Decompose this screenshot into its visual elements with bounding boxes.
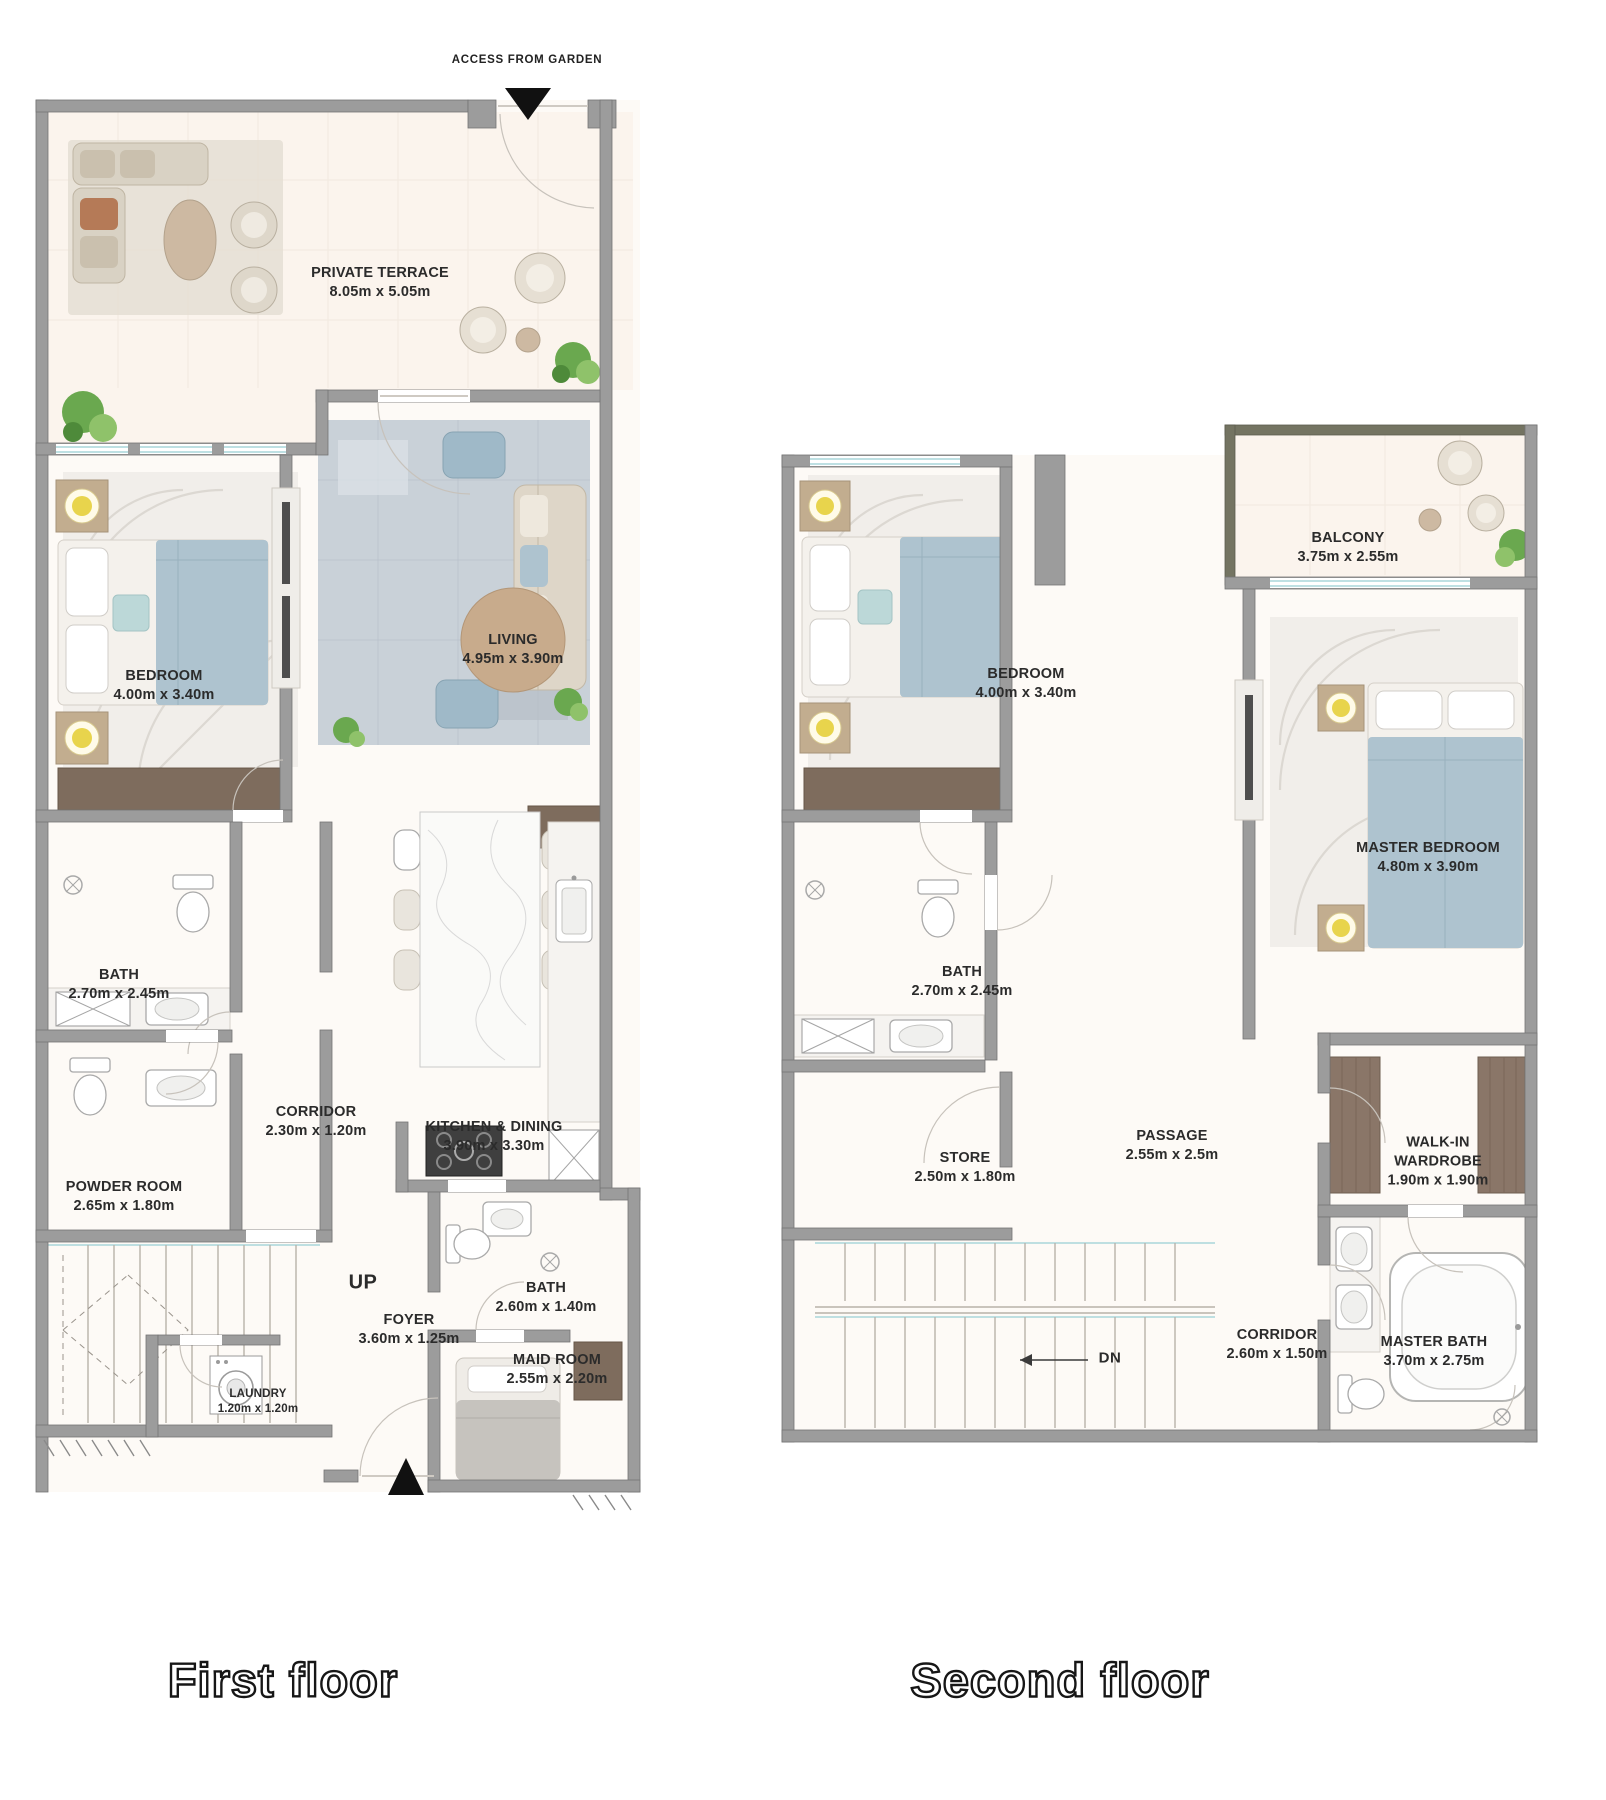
nightstand-lamp-icon [1318,685,1364,731]
room-label-corridor: CORRIDOR 2.30m x 1.20m [266,1103,367,1141]
room-name: PRIVATE TERRACE [311,264,449,283]
room-dims: 4.00m x 3.40m [976,684,1077,703]
second-floor-caption: Second floor [910,1653,1209,1708]
room-name: CORRIDOR [1237,1326,1318,1345]
room-label-balcony: BALCONY 3.75m x 2.55m [1298,529,1399,567]
dn-label: DN [1099,1350,1122,1367]
room-dims: 2.65m x 1.80m [74,1197,175,1216]
room-label-bath-2: BATH 2.60m x 1.40m [496,1279,597,1317]
bathtub-icon [1390,1253,1528,1401]
room-label-kitchen-dining: KITCHEN & DINING 3.90m x 3.30m [426,1118,563,1156]
room-name: LAUNDRY [229,1387,286,1402]
room-name: BATH [99,966,139,985]
room-label-walkin-wardrobe: WALK-IN WARDROBE 1.90m x 1.90m [1373,1133,1503,1190]
room-name: POWDER ROOM [66,1178,183,1197]
room-label-bath-2f: BATH 2.70m x 2.45m [912,963,1013,1001]
kitchen-counter [548,822,600,1122]
sliding-door [272,488,300,688]
room-name: FOYER [384,1311,435,1330]
room-name: CORRIDOR [276,1103,357,1122]
room-name: LIVING [488,631,538,650]
access-from-garden-label: ACCESS FROM GARDEN [452,54,603,66]
room-dims: 2.60m x 1.50m [1227,1345,1328,1364]
room-dims: 2.55m x 2.5m [1126,1146,1219,1165]
nightstand-lamp-icon [800,703,850,753]
room-label-bath: BATH 2.70m x 2.45m [69,966,170,1004]
sink-icon [483,1202,531,1236]
room-dims: 2.60m x 1.40m [496,1298,597,1317]
window-band [56,444,286,454]
room-label-master-bath: MASTER BATH 3.70m x 2.75m [1381,1333,1488,1371]
window-band [810,456,960,466]
room-dims: 2.30m x 1.20m [266,1122,367,1141]
up-label: UP [349,1272,378,1295]
nightstand-lamp-icon [56,712,108,764]
room-dims: 4.00m x 3.40m [114,686,215,705]
room-label-living: LIVING 4.95m x 3.90m [463,631,564,669]
bed [1368,683,1523,948]
terrace-lounge-set [68,140,283,315]
room-name: MASTER BATH [1381,1333,1488,1352]
room-name: MAID ROOM [513,1351,601,1370]
room-dims: 3.90m x 3.30m [444,1137,545,1156]
room-dims: 8.05m x 5.05m [330,283,431,302]
room-dims: 2.55m x 2.20m [507,1370,608,1389]
room-dims: 2.70m x 2.45m [69,985,170,1004]
room-label-bedroom: BEDROOM 4.00m x 3.40m [114,667,215,705]
room-label-private-terrace: PRIVATE TERRACE 8.05m x 5.05m [311,264,449,302]
room-name: STORE [940,1149,991,1168]
armchair [443,432,505,478]
room-dims: 1.20m x 1.20m [218,1402,299,1417]
room-name: BATH [526,1279,566,1298]
room-name: BEDROOM [987,665,1064,684]
shaft-box [802,1019,874,1053]
room-name: MASTER BEDROOM [1356,839,1500,858]
room-name: BALCONY [1311,529,1384,548]
room-dims: 3.60m x 1.25m [359,1330,460,1349]
room-label-passage: PASSAGE 2.55m x 2.5m [1126,1127,1219,1165]
nightstand-lamp-icon [800,481,850,531]
second-floor-plan-drawing [770,385,1560,1465]
bedroom-wardrobe [804,768,1000,810]
room-name: BEDROOM [125,667,202,686]
room-label-corridor-2f: CORRIDOR 2.60m x 1.50m [1227,1326,1328,1364]
nightstand-lamp-icon [56,480,108,532]
room-label-master-bedroom: MASTER BEDROOM 4.80m x 3.90m [1356,839,1500,877]
room-dims: 2.50m x 1.80m [915,1168,1016,1187]
floorplan-page: { "page": { "background": "#ffffff" }, "… [0,0,1606,1800]
room-name: WALK-IN WARDROBE [1373,1133,1503,1171]
first-floor-caption: First floor [168,1653,398,1708]
nightstand-lamp-icon [1318,905,1364,951]
room-label-store: STORE 2.50m x 1.80m [915,1149,1016,1187]
bedroom-wardrobe [58,768,280,810]
sliding-door [1235,680,1263,820]
room-dims: 4.80m x 3.90m [1378,858,1479,877]
armchair [436,680,498,728]
window-band [1270,578,1470,588]
room-label-foyer: FOYER 3.60m x 1.25m [359,1311,460,1349]
room-label-laundry: LAUNDRY 1.20m x 1.20m [218,1387,299,1417]
room-name: KITCHEN & DINING [426,1118,563,1137]
room-label-maid-room: MAID ROOM 2.55m x 2.20m [507,1351,608,1389]
room-dims: 4.95m x 3.90m [463,650,564,669]
room-dims: 1.90m x 1.90m [1388,1172,1489,1191]
room-dims: 2.70m x 2.45m [912,982,1013,1001]
room-name: PASSAGE [1136,1127,1207,1146]
room-label-powder-room: POWDER ROOM 2.65m x 1.80m [66,1178,183,1216]
room-label-bedroom-2f: BEDROOM 4.00m x 3.40m [976,665,1077,703]
room-name: BATH [942,963,982,982]
room-dims: 3.75m x 2.55m [1298,548,1399,567]
room-dims: 3.70m x 2.75m [1384,1352,1485,1371]
